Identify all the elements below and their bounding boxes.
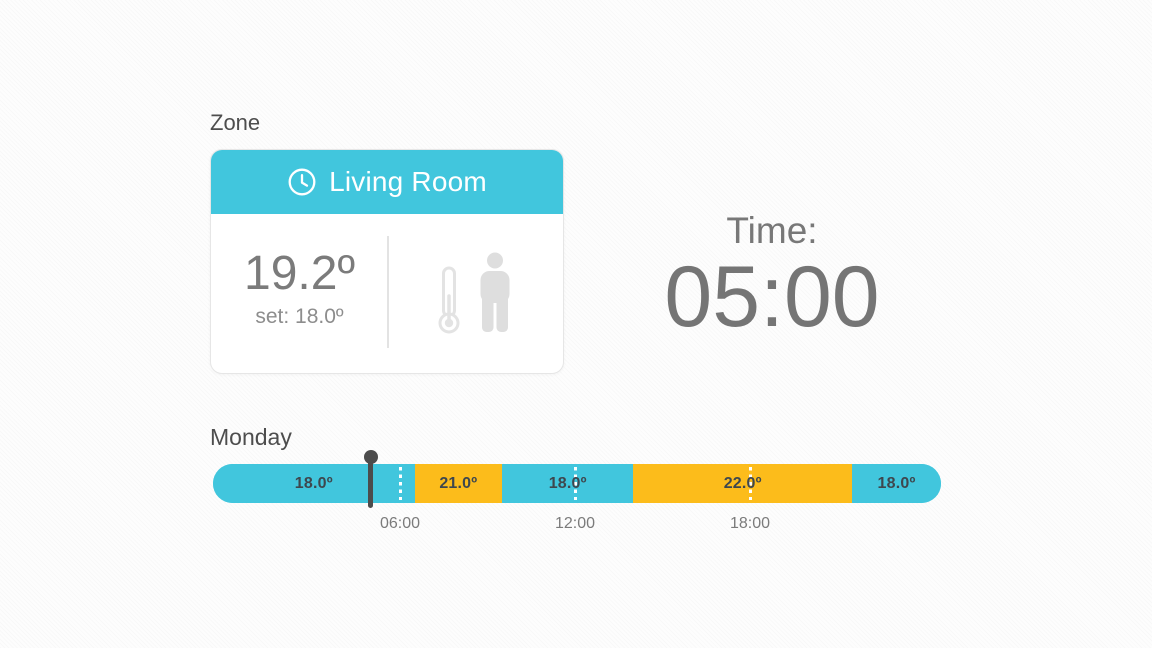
- person-icon: [475, 252, 515, 334]
- tick-label: 12:00: [535, 515, 615, 533]
- tick-line: [399, 467, 402, 500]
- schedule-segment[interactable]: 18.0º: [502, 464, 633, 503]
- pin-head: [364, 450, 378, 464]
- current-temperature: 19.2º: [211, 250, 388, 298]
- time-display: Time: 05:00: [632, 210, 912, 340]
- segment-temperature-label: 18.0º: [878, 475, 916, 493]
- tick-label: 18:00: [710, 515, 790, 533]
- segment-temperature-label: 22.0º: [724, 475, 762, 493]
- segment-temperature-label: 18.0º: [295, 475, 333, 493]
- thermometer-icon: [436, 266, 462, 334]
- segment-temperature-label: 18.0º: [549, 475, 587, 493]
- segment-temperature-label: 21.0º: [439, 475, 477, 493]
- tick-label: 06:00: [360, 515, 440, 533]
- zone-section-label: Zone: [210, 110, 260, 136]
- zone-card-body: 19.2º set: 18.0º: [211, 214, 563, 373]
- schedule-segment[interactable]: 21.0º: [415, 464, 503, 503]
- time-label: Time:: [632, 210, 912, 252]
- day-label: Monday: [210, 424, 292, 451]
- thermostat-dashboard: Zone Living Room 19.2º set: 18.0º: [0, 0, 1152, 648]
- schedule-segment[interactable]: 18.0º: [852, 464, 941, 503]
- schedule-segment[interactable]: 22.0º: [633, 464, 852, 503]
- zone-card[interactable]: Living Room 19.2º set: 18.0º: [210, 149, 564, 374]
- temperature-block: 19.2º set: 18.0º: [211, 250, 388, 329]
- schedule-bar[interactable]: 18.0º21.0º18.0º22.0º18.0º: [213, 464, 941, 503]
- schedule-timeline: 18.0º21.0º18.0º22.0º18.0º 06:0012:0018:0…: [213, 464, 941, 503]
- zone-card-header: Living Room: [211, 150, 563, 214]
- status-icons: [388, 244, 563, 334]
- room-name: Living Room: [329, 166, 487, 198]
- set-temperature: set: 18.0º: [211, 305, 388, 329]
- clock-icon: [287, 167, 317, 197]
- time-marker-pin[interactable]: [363, 450, 379, 508]
- schedule-segment[interactable]: 18.0º: [213, 464, 415, 503]
- time-value: 05:00: [632, 254, 912, 340]
